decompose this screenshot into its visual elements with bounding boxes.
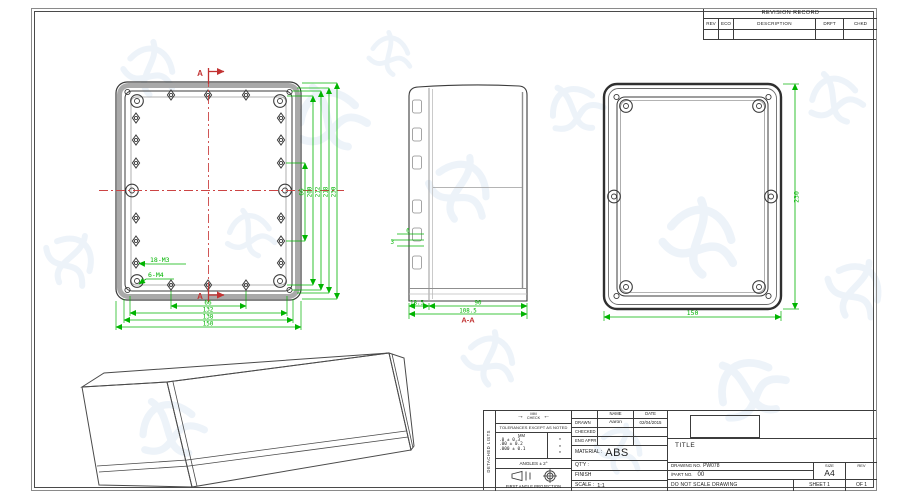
dim-width-138: 138 [203, 314, 214, 321]
section-cut-marks: A A [197, 68, 224, 302]
dim-height-212: 212 [315, 186, 322, 197]
tolerance-values: MM .0 ± 0.3 .00 ± 0.2 .000 ± 0.1 [496, 433, 548, 459]
dim-style-row: → MM CHECK ← [496, 411, 572, 424]
dim-height-200: 200 [307, 186, 314, 197]
drawing-sheet: A A 66 132 [0, 0, 900, 500]
tolerance-marks: * * * [548, 433, 572, 459]
callout-bosses-label: 18-M3 [150, 256, 170, 264]
dim-rib: 3 [391, 240, 395, 246]
logo-box [690, 415, 760, 438]
revision-col-description: DESCRIPTION [734, 19, 816, 30]
check-label: CHECK [527, 417, 540, 421]
isometric-view [82, 353, 414, 487]
material-label: MATERIAL : [575, 450, 602, 456]
dim-width-132: 132 [203, 307, 214, 314]
eng-appr-date [634, 437, 668, 446]
rev-cell: REV [846, 463, 877, 480]
tolerance-mark-3: * [559, 452, 561, 458]
material-value: ABS [605, 447, 629, 459]
approvals-label-col [572, 411, 598, 419]
angles-note: ANGLES ± 2° [496, 459, 572, 469]
title-label: TITLE [675, 442, 695, 449]
frustum-icon [511, 470, 537, 482]
arrow-right-icon: → [517, 413, 524, 421]
tolerance-note: TOLERANCES EXCEPT AS NOTED [496, 424, 572, 433]
revision-empty-rev [704, 30, 719, 40]
back-outline [604, 84, 781, 309]
eng-appr-label: ENG APPR [572, 437, 598, 446]
section-dim-labels: 18.5 90 108.5 6 3 [391, 229, 482, 315]
projection-target-icon [543, 469, 557, 483]
dim-back-height: 230 [793, 191, 801, 203]
callout-ears-label: 6-M4 [148, 271, 164, 279]
section-label-top: A [197, 69, 203, 78]
revision-col-rev: REV [704, 19, 719, 30]
revision-empty-drft [816, 30, 844, 40]
tolerance-mark-1: * [559, 439, 561, 445]
material-row: MATERIAL : ABS [572, 446, 668, 461]
dim-lid: 18.5 [410, 301, 424, 307]
revision-empty-eco [719, 30, 734, 40]
projection-note: FIRST ANGLE PROJECTION [496, 483, 572, 491]
dim-height-218: 218 [323, 186, 330, 197]
drawing-no-label: DRAWING NO. [671, 464, 701, 469]
dim-boss: 6 [406, 229, 410, 235]
dim-width-66: 66 [204, 300, 212, 307]
dim-height-230: 230 [331, 186, 338, 197]
dim-back-width: 150 [687, 309, 699, 317]
revision-col-chkd: CHKD [844, 19, 877, 30]
side-strip-note: DETACHED LISTS [487, 430, 492, 473]
dim-width-150: 150 [203, 321, 214, 328]
section-view: 18.5 90 108.5 6 3 A-A [391, 85, 528, 325]
drawn-name: Aaron [598, 419, 634, 428]
checked-name [598, 428, 634, 437]
tolerance-grid: MM .0 ± 0.3 .00 ± 0.2 .000 ± 0.1 * * * [496, 433, 572, 459]
projection-symbols [496, 469, 572, 483]
size-value: A4 [814, 469, 845, 479]
logo-zone [668, 411, 877, 439]
section-outline [409, 85, 527, 301]
part-no-row: /PART NO. 00 [668, 471, 814, 480]
revision-empty-description [734, 30, 816, 40]
name-header: NAME [598, 411, 634, 419]
tolerance-row-3: .000 ± 0.1 [499, 448, 544, 453]
title-row: TITLE [668, 439, 877, 463]
date-header: DATE [634, 411, 668, 419]
no-scale-note: DO NOT SCALE DRAWING [668, 480, 794, 491]
drawn-date: 02/04/2015 [634, 419, 668, 428]
revision-table: REVISION RECORD REV ECO DESCRIPTION DRFT… [703, 9, 876, 40]
section-label-bottom: A [197, 292, 203, 301]
qty-label: QT'Y : [572, 461, 668, 471]
side-strip: DETACHED LISTS [484, 411, 496, 491]
scale-label: SCALE : [575, 483, 594, 489]
revision-col-eco: ECO [719, 19, 734, 30]
part-no-label: /PART NO. [671, 473, 692, 478]
title-block: DETACHED LISTS → MM CHECK ← TOLERANCES E… [483, 410, 876, 490]
plan-callouts: 18-M3 6-M4 [139, 256, 186, 284]
revision-table-title: REVISION RECORD [704, 9, 877, 19]
dim-body: 90 [475, 301, 482, 307]
scale-value: 1:1 [597, 483, 605, 489]
eng-appr-name [598, 437, 634, 446]
drawing-no-row: DRAWING NO. PW078 [668, 463, 814, 471]
arrow-left-icon: ← [543, 413, 550, 421]
section-title: A-A [461, 316, 475, 325]
checked-date [634, 428, 668, 437]
size-cell: SIZE A4 [814, 463, 846, 480]
of-cell: OF 1 [846, 480, 877, 491]
part-no-value: 00 [697, 472, 704, 479]
finish-label: FINISH [572, 471, 668, 481]
drawn-label: DRAWN [572, 419, 598, 428]
drawing-no-value: PW078 [703, 464, 719, 470]
checked-label: CHECKED [572, 428, 598, 437]
rev-label: REV [846, 463, 877, 469]
dim-height-66: 66 [299, 188, 306, 196]
revision-col-drft: DRFT [816, 19, 844, 30]
sheet-cell: SHEET 1 [794, 480, 846, 491]
dim-total: 108.5 [459, 309, 477, 315]
scale-row: SCALE : 1:1 [572, 481, 668, 491]
